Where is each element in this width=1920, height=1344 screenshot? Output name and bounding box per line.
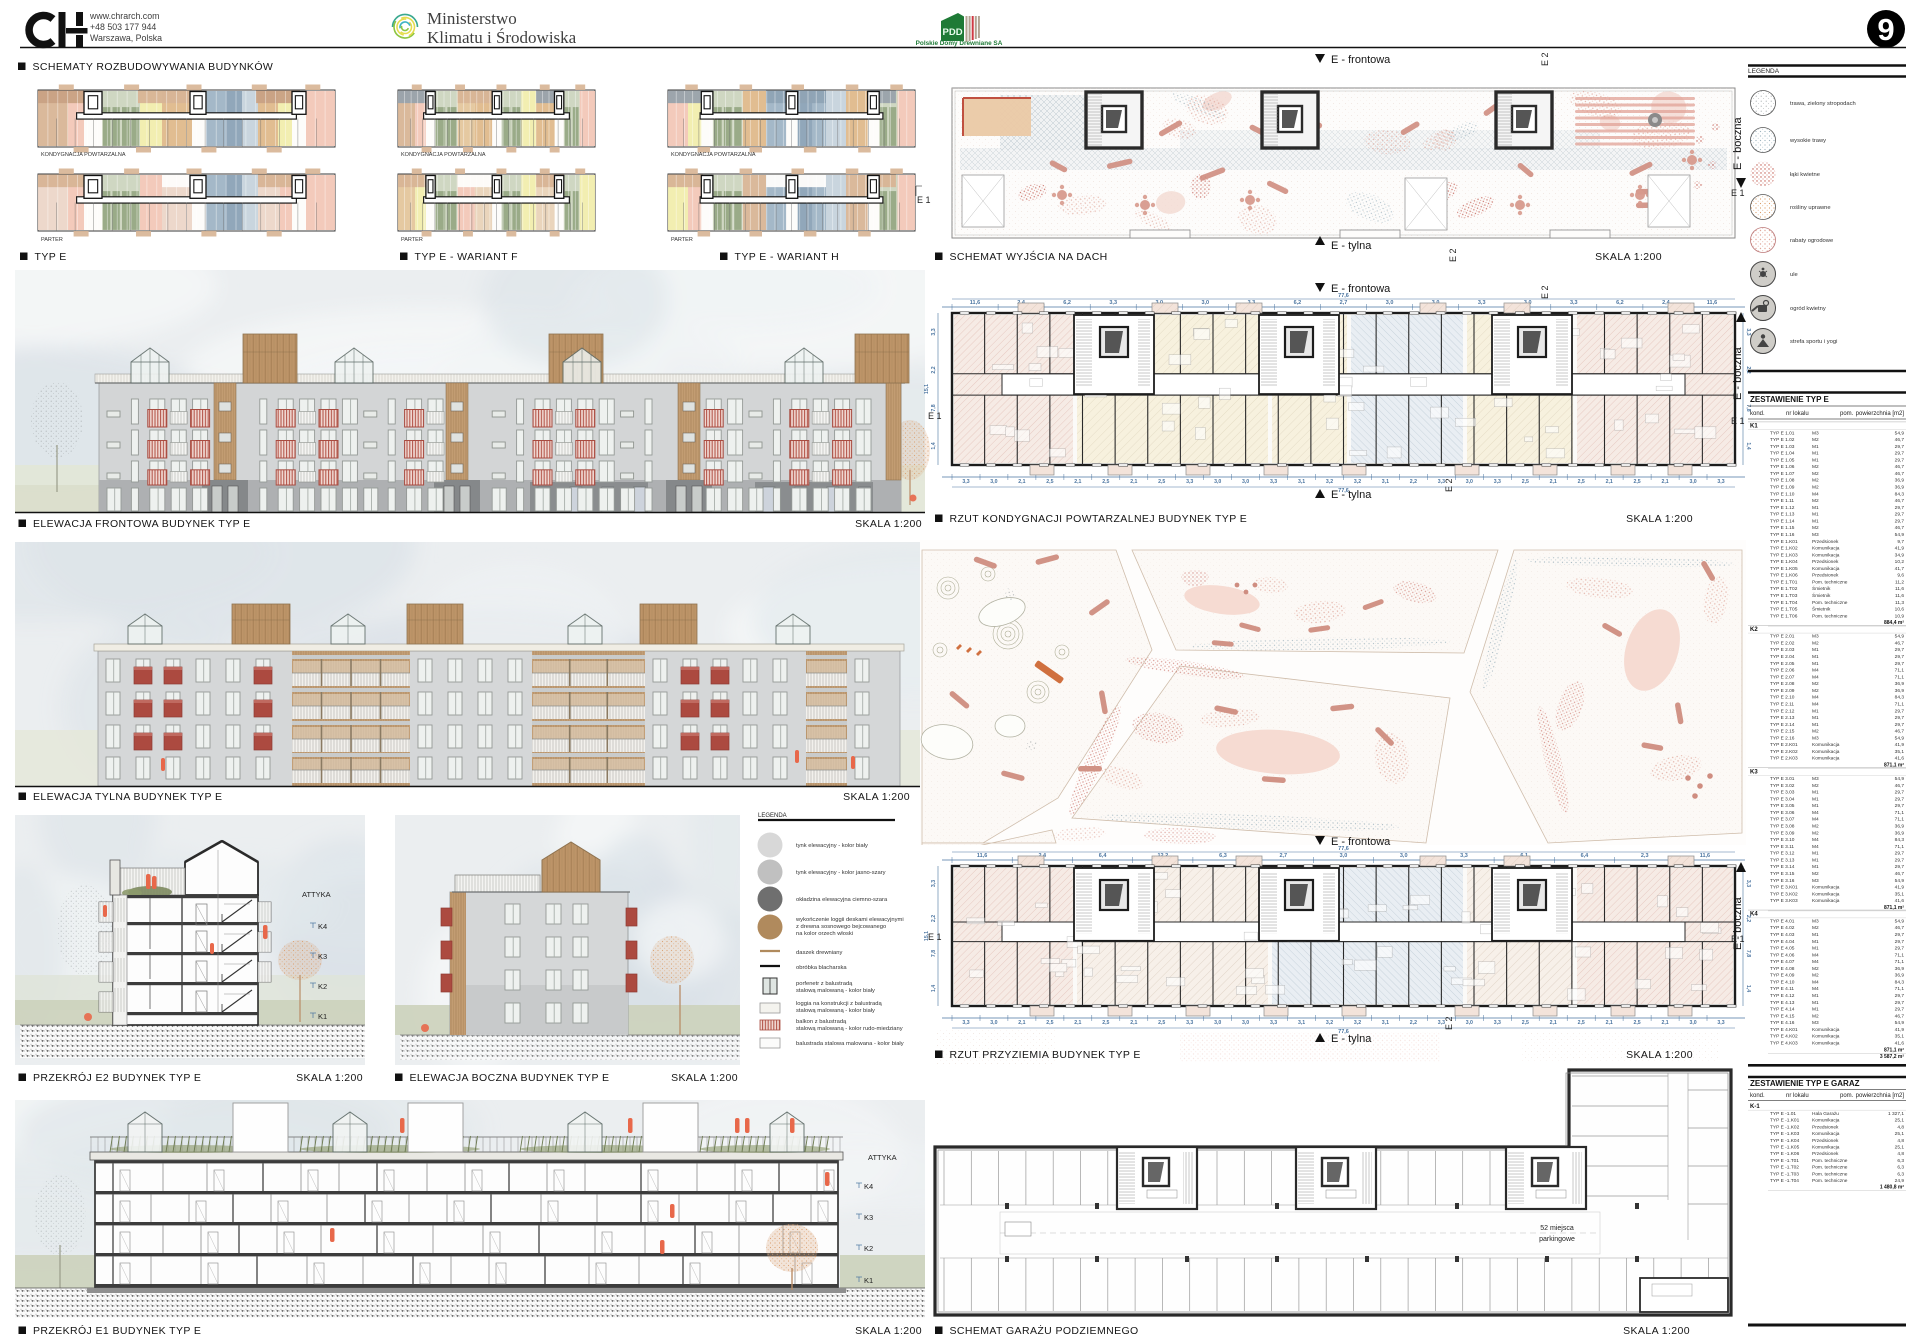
svg-text:wykończenie loggii deskami ele: wykończenie loggii deskami elewacyjnymi (795, 917, 904, 923)
svg-text:2,1: 2,1 (1130, 1020, 1137, 1026)
svg-text:29,7: 29,7 (1895, 661, 1905, 667)
svg-text:3,3: 3,3 (931, 880, 937, 887)
svg-text:3,3: 3,3 (1745, 880, 1751, 887)
svg-text:2,1: 2,1 (1661, 479, 1668, 485)
svg-text:41,9: 41,9 (1895, 1027, 1905, 1033)
svg-text:tynk elewacyjny - kolor biały: tynk elewacyjny - kolor biały (796, 843, 868, 849)
svg-text:3,0: 3,0 (1214, 479, 1221, 485)
svg-text:parkingowe: parkingowe (1539, 1236, 1575, 1243)
svg-text:29,7: 29,7 (1895, 946, 1905, 952)
svg-text:M2: M2 (1812, 525, 1819, 531)
svg-text:35,1: 35,1 (1895, 1034, 1905, 1040)
svg-text:3,0: 3,0 (1340, 853, 1348, 859)
svg-text:SKALA 1:200: SKALA 1:200 (1626, 1049, 1693, 1061)
svg-text:kond.: kond. (1750, 1093, 1765, 1099)
svg-text:3,3: 3,3 (1745, 328, 1751, 335)
svg-text:71,1: 71,1 (1895, 674, 1905, 680)
svg-text:M4: M4 (1812, 668, 1819, 674)
svg-text:2,5: 2,5 (1046, 1020, 1053, 1026)
svg-text:10,2: 10,2 (1895, 559, 1905, 565)
svg-text:M1: M1 (1812, 803, 1819, 809)
svg-text:29,7: 29,7 (1895, 857, 1905, 863)
svg-text:29,7: 29,7 (1895, 993, 1905, 999)
svg-text:E 2: E 2 (1444, 1016, 1454, 1030)
svg-text:2,1: 2,1 (1018, 1020, 1025, 1026)
svg-text:Komunikacja: Komunikacja (1812, 756, 1840, 762)
svg-text:7,8: 7,8 (931, 950, 937, 957)
svg-text:46,7: 46,7 (1895, 471, 1905, 477)
svg-text:29,7: 29,7 (1895, 790, 1905, 796)
svg-text:54,9: 54,9 (1895, 878, 1905, 884)
svg-text:3,0: 3,0 (1386, 300, 1394, 306)
svg-text:3,0: 3,0 (1400, 853, 1408, 859)
svg-text:TYP E 4.06: TYP E 4.06 (1770, 952, 1795, 958)
svg-text:Hala Garażu: Hala Garażu (1812, 1111, 1839, 1117)
svg-text:ZESTAWIENIE TYP E GARAZ: ZESTAWIENIE TYP E GARAZ (1750, 1079, 1860, 1088)
svg-text:TYP E -1.01: TYP E -1.01 (1770, 1111, 1796, 1117)
svg-text:K3: K3 (318, 952, 327, 961)
svg-text:TYP E 4.10: TYP E 4.10 (1770, 979, 1795, 985)
svg-text:SKALA 1:200: SKALA 1:200 (843, 791, 910, 803)
svg-text:TYP E 1.T03: TYP E 1.T03 (1770, 593, 1798, 599)
svg-text:TYP E 3.K03: TYP E 3.K03 (1770, 898, 1798, 904)
svg-text:M1: M1 (1812, 851, 1819, 857)
svg-text:TYP E 2.02: TYP E 2.02 (1770, 640, 1795, 646)
svg-text:M2: M2 (1812, 485, 1819, 491)
svg-text:balustrada stalowa malowana -: balustrada stalowa malowana - kolor biał… (796, 1041, 904, 1047)
svg-text:E 1: E 1 (1731, 188, 1745, 198)
svg-text:TYP E 4.09: TYP E 4.09 (1770, 973, 1795, 979)
svg-text:SKALA 1:200: SKALA 1:200 (296, 1072, 363, 1084)
svg-text:34,9: 34,9 (1895, 552, 1905, 558)
svg-text:6,3: 6,3 (1219, 853, 1227, 859)
svg-text:M4: M4 (1812, 979, 1819, 985)
svg-text:KONDYGNACJA POWTARZALNA: KONDYGNACJA POWTARZALNA (671, 152, 756, 158)
svg-text:54,9: 54,9 (1895, 532, 1905, 538)
svg-text:TYP E 3.12: TYP E 3.12 (1770, 851, 1795, 857)
svg-text:TYP E 2.14: TYP E 2.14 (1770, 722, 1795, 728)
svg-text:TYP E 1.K02: TYP E 1.K02 (1770, 546, 1798, 552)
svg-text:M1: M1 (1812, 722, 1819, 728)
svg-text:TYP E 4.14: TYP E 4.14 (1770, 1007, 1795, 1013)
svg-text:3 587,2 m²: 3 587,2 m² (1880, 1054, 1905, 1060)
svg-text:E - boczna: E - boczna (1732, 347, 1744, 400)
svg-text:M1: M1 (1812, 864, 1819, 870)
svg-text:TYP E 1.09: TYP E 1.09 (1770, 485, 1795, 491)
svg-text:+48 503 177 944: +48 503 177 944 (90, 22, 156, 32)
svg-text:2,5: 2,5 (1522, 1020, 1529, 1026)
svg-text:TYP E 2.08: TYP E 2.08 (1770, 681, 1795, 687)
svg-text:TYP E 2.10: TYP E 2.10 (1770, 695, 1795, 701)
svg-text:3,1: 3,1 (1298, 479, 1305, 485)
svg-text:K2: K2 (1750, 627, 1758, 633)
svg-text:3,3: 3,3 (1717, 479, 1724, 485)
svg-text:3,0: 3,0 (990, 1020, 997, 1026)
svg-text:E 1: E 1 (917, 195, 931, 205)
svg-text:Komunikacja: Komunikacja (1812, 1145, 1840, 1151)
svg-text:TYP E 1.13: TYP E 1.13 (1770, 512, 1795, 518)
svg-text:2,5: 2,5 (1633, 1020, 1640, 1026)
svg-text:TYP E 1.07: TYP E 1.07 (1770, 471, 1795, 477)
svg-text:M3: M3 (1812, 634, 1819, 640)
svg-text:TYP E 3.K01: TYP E 3.K01 (1770, 885, 1798, 891)
svg-text:TYP E 2.K03: TYP E 2.K03 (1770, 756, 1798, 762)
svg-text:46,7: 46,7 (1895, 1013, 1905, 1019)
svg-text:3,3: 3,3 (1494, 479, 1501, 485)
svg-text:3,2: 3,2 (1326, 1020, 1333, 1026)
svg-text:M4: M4 (1812, 701, 1819, 707)
svg-text:M2: M2 (1812, 871, 1819, 877)
svg-text:E - tylna: E - tylna (1331, 489, 1372, 501)
svg-text:4,8: 4,8 (1897, 1151, 1904, 1157)
svg-text:M1: M1 (1812, 518, 1819, 524)
svg-text:Pom. techniczne: Pom. techniczne (1812, 613, 1848, 619)
svg-text:LEGENDA: LEGENDA (758, 813, 787, 819)
svg-text:3,0: 3,0 (1242, 479, 1249, 485)
svg-text:ogród kwietny: ogród kwietny (1790, 306, 1826, 312)
svg-text:TYP E 2.K01: TYP E 2.K01 (1770, 742, 1798, 748)
svg-text:36,9: 36,9 (1895, 478, 1905, 484)
svg-text:porfenetr z balustradą: porfenetr z balustradą (796, 981, 853, 987)
svg-text:TYP E 4.01: TYP E 4.01 (1770, 918, 1795, 924)
svg-text:46,7: 46,7 (1895, 729, 1905, 735)
svg-text:2,1: 2,1 (1074, 1020, 1081, 1026)
svg-text:1 480,8 m²: 1 480,8 m² (1880, 1185, 1905, 1191)
svg-text:M2: M2 (1812, 471, 1819, 477)
svg-text:TYP E 4.13: TYP E 4.13 (1770, 1000, 1795, 1006)
svg-text:K-1: K-1 (1750, 1104, 1760, 1110)
svg-text:2,1: 2,1 (1130, 479, 1137, 485)
svg-text:M2: M2 (1812, 478, 1819, 484)
svg-text:kond.: kond. (1750, 411, 1765, 417)
svg-text:M2: M2 (1812, 973, 1819, 979)
svg-text:M3: M3 (1812, 918, 1819, 924)
svg-text:E - boczna: E - boczna (1732, 117, 1744, 170)
svg-text:PARTER: PARTER (41, 237, 63, 243)
svg-text:29,7: 29,7 (1895, 851, 1905, 857)
svg-text:2,5: 2,5 (1102, 479, 1109, 485)
svg-text:PRZEKRÓJ E2 BUDYNEK TYP E: PRZEKRÓJ E2 BUDYNEK TYP E (33, 1071, 201, 1084)
svg-text:71,1: 71,1 (1895, 844, 1905, 850)
svg-text:2,5: 2,5 (1633, 479, 1640, 485)
svg-text:71,1: 71,1 (1895, 952, 1905, 958)
svg-text:TYP E 3.03: TYP E 3.03 (1770, 790, 1795, 796)
svg-text:TYP E 1.T04: TYP E 1.T04 (1770, 600, 1798, 606)
svg-text:TYP E 3.K02: TYP E 3.K02 (1770, 891, 1798, 897)
svg-text:29,7: 29,7 (1895, 512, 1905, 518)
svg-text:84,3: 84,3 (1895, 491, 1905, 497)
svg-text:84,3: 84,3 (1895, 837, 1905, 843)
svg-text:29,7: 29,7 (1895, 647, 1905, 653)
svg-text:E - tylna: E - tylna (1331, 240, 1372, 252)
svg-text:Komunikacja: Komunikacja (1812, 1040, 1840, 1046)
svg-text:TYP E 2.11: TYP E 2.11 (1770, 701, 1794, 707)
svg-text:TYP E 4.05: TYP E 4.05 (1770, 946, 1795, 952)
svg-text:TYP E 4.16: TYP E 4.16 (1770, 1020, 1795, 1026)
svg-text:TYP E 1.16: TYP E 1.16 (1770, 532, 1795, 538)
svg-text:46,7: 46,7 (1895, 437, 1905, 443)
svg-text:TYP E 3.13: TYP E 3.13 (1770, 857, 1795, 863)
svg-text:Pom. techniczne: Pom. techniczne (1812, 600, 1848, 606)
svg-text:TYP E 4.02: TYP E 4.02 (1770, 925, 1795, 931)
svg-text:6,2: 6,2 (1063, 300, 1071, 306)
svg-text:TYP E 1.T06: TYP E 1.T06 (1770, 613, 1798, 619)
svg-text:84,3: 84,3 (1895, 695, 1905, 701)
svg-text:1 327,1: 1 327,1 (1888, 1111, 1904, 1117)
svg-text:K1: K1 (1750, 424, 1758, 430)
svg-text:3,3: 3,3 (1270, 1020, 1277, 1026)
svg-text:3,1: 3,1 (1382, 479, 1389, 485)
svg-text:TYP E 1.05: TYP E 1.05 (1770, 457, 1795, 463)
svg-text:46,7: 46,7 (1895, 464, 1905, 470)
svg-text:36,9: 36,9 (1895, 824, 1905, 830)
svg-text:E - frontowa: E - frontowa (1331, 54, 1391, 66)
svg-text:11,6: 11,6 (1895, 586, 1904, 592)
svg-text:2,1: 2,1 (1018, 479, 1025, 485)
svg-text:E 2: E 2 (1540, 285, 1550, 299)
svg-text:Komunikacja: Komunikacja (1812, 749, 1840, 755)
svg-text:41,7: 41,7 (1895, 566, 1905, 572)
svg-text:stalową malowaną - kolor rudo-: stalową malowaną - kolor rudo-miedziany (796, 1026, 903, 1032)
svg-text:trawa, zielony stropodach: trawa, zielony stropodach (1790, 101, 1856, 107)
svg-text:46,7: 46,7 (1895, 498, 1905, 504)
svg-text:3,0: 3,0 (1466, 479, 1473, 485)
svg-text:K1: K1 (318, 1012, 327, 1021)
svg-text:3,0: 3,0 (1242, 1020, 1249, 1026)
svg-text:3,3: 3,3 (1494, 1020, 1501, 1026)
svg-text:M3: M3 (1812, 878, 1819, 884)
svg-text:K3: K3 (864, 1213, 873, 1222)
svg-text:71,1: 71,1 (1895, 986, 1905, 992)
svg-text:TYP E 2.16: TYP E 2.16 (1770, 735, 1795, 741)
svg-text:3,1: 3,1 (1382, 1020, 1389, 1026)
svg-text:M4: M4 (1812, 837, 1819, 843)
svg-text:15,1: 15,1 (924, 384, 930, 394)
svg-text:M1: M1 (1812, 654, 1819, 660)
svg-text:35,1: 35,1 (1895, 891, 1905, 897)
svg-text:46,7: 46,7 (1895, 640, 1905, 646)
svg-text:Komunikacja: Komunikacja (1812, 552, 1840, 558)
svg-text:TYP E -1.K01: TYP E -1.K01 (1770, 1118, 1800, 1124)
svg-text:loggia na konstrukcji z balust: loggia na konstrukcji z balustradą (796, 1001, 882, 1007)
svg-text:871,1 m²: 871,1 m² (1884, 1047, 1904, 1053)
svg-text:TYP E -1.K05: TYP E -1.K05 (1770, 1145, 1800, 1151)
svg-text:36,9: 36,9 (1895, 485, 1905, 491)
svg-text:3,1: 3,1 (1298, 1020, 1305, 1026)
svg-text:Pom. techniczne: Pom. techniczne (1812, 1178, 1848, 1184)
svg-text:M2: M2 (1812, 437, 1819, 443)
svg-text:TYP E 2.09: TYP E 2.09 (1770, 688, 1795, 694)
svg-text:TYP E 1.01: TYP E 1.01 (1770, 430, 1795, 436)
svg-text:2,5: 2,5 (1046, 479, 1053, 485)
svg-text:6,3: 6,3 (1897, 1171, 1904, 1177)
svg-text:M3: M3 (1812, 735, 1819, 741)
svg-text:M2: M2 (1812, 681, 1819, 687)
svg-text:Komunikacja: Komunikacja (1812, 1027, 1840, 1033)
svg-text:Ministerstwo: Ministerstwo (427, 9, 517, 28)
svg-text:Pom. techniczne: Pom. techniczne (1812, 579, 1848, 585)
svg-text:54,9: 54,9 (1895, 735, 1905, 741)
svg-text:52 miejsca: 52 miejsca (1540, 1225, 1574, 1232)
svg-text:E 2: E 2 (1444, 478, 1454, 492)
svg-text:2,2: 2,2 (1410, 1020, 1417, 1026)
svg-text:TYP E 1.T01: TYP E 1.T01 (1770, 579, 1798, 585)
svg-text:Pom. techniczne: Pom. techniczne (1812, 1171, 1848, 1177)
svg-text:1,4: 1,4 (931, 985, 937, 992)
svg-text:71,1: 71,1 (1895, 701, 1905, 707)
svg-text:M4: M4 (1812, 810, 1819, 816)
svg-text:M1: M1 (1812, 939, 1819, 945)
svg-text:29,7: 29,7 (1895, 1000, 1905, 1006)
svg-text:SCHEMATY ROZBUDOWYWANIA BUDYNK: SCHEMATY ROZBUDOWYWANIA BUDYNKÓW (33, 60, 274, 73)
svg-text:1,4: 1,4 (931, 442, 937, 449)
svg-text:TYP E -1.K03: TYP E -1.K03 (1770, 1131, 1800, 1137)
svg-text:11,6: 11,6 (1707, 300, 1717, 306)
svg-text:SCHEMAT GARAŻU PODZIEMNEGO: SCHEMAT GARAŻU PODZIEMNEGO (950, 1324, 1139, 1337)
svg-text:TYP E 1.10: TYP E 1.10 (1770, 491, 1795, 497)
svg-text:2,3: 2,3 (1641, 853, 1649, 859)
svg-text:TYP E 2.05: TYP E 2.05 (1770, 661, 1795, 667)
svg-text:M2: M2 (1812, 824, 1819, 830)
svg-text:TYP E 4.K02: TYP E 4.K02 (1770, 1034, 1798, 1040)
svg-text:2,1: 2,1 (1550, 479, 1557, 485)
svg-text:54,9: 54,9 (1895, 634, 1905, 640)
svg-text:TYP E 2.15: TYP E 2.15 (1770, 729, 1795, 735)
svg-text:TYP E 1.15: TYP E 1.15 (1770, 525, 1795, 531)
svg-text:E 2: E 2 (1540, 52, 1550, 66)
svg-text:54,9: 54,9 (1895, 776, 1905, 782)
svg-text:2,1: 2,1 (1550, 1020, 1557, 1026)
svg-text:M4: M4 (1812, 986, 1819, 992)
svg-text:TYP E 2.K02: TYP E 2.K02 (1770, 749, 1798, 755)
svg-text:11,3: 11,3 (1895, 600, 1904, 606)
svg-text:2,5: 2,5 (1102, 1020, 1109, 1026)
svg-text:KONDYGNACJA POWTARZALNA: KONDYGNACJA POWTARZALNA (401, 152, 486, 158)
svg-text:TYP E 3.07: TYP E 3.07 (1770, 817, 1795, 823)
svg-text:2,1: 2,1 (1606, 1020, 1613, 1026)
svg-text:M3: M3 (1812, 776, 1819, 782)
svg-text:2,5: 2,5 (1158, 1020, 1165, 1026)
svg-text:46,7: 46,7 (1895, 525, 1905, 531)
svg-text:M1: M1 (1812, 505, 1819, 511)
svg-text:M1: M1 (1812, 1000, 1819, 1006)
svg-text:z drewna sosnowego bejcowanego: z drewna sosnowego bejcowanego (796, 924, 886, 930)
svg-text:nr lokalu: nr lokalu (1786, 411, 1809, 417)
svg-text:M2: M2 (1812, 1013, 1819, 1019)
svg-text:TYP E: TYP E (35, 251, 67, 263)
svg-text:TYP E 3.06: TYP E 3.06 (1770, 810, 1795, 816)
svg-text:TYP E 1.14: TYP E 1.14 (1770, 518, 1795, 524)
svg-text:rabaty ogrodowe: rabaty ogrodowe (1790, 238, 1833, 244)
svg-text:PARTER: PARTER (401, 237, 423, 243)
svg-text:3,3: 3,3 (1717, 1020, 1724, 1026)
svg-text:36,9: 36,9 (1895, 688, 1905, 694)
svg-text:K2: K2 (864, 1244, 873, 1253)
svg-text:M1: M1 (1812, 715, 1819, 721)
svg-text:M4: M4 (1812, 952, 1819, 958)
svg-text:10,6: 10,6 (1895, 607, 1905, 613)
svg-text:Komunikacja: Komunikacja (1812, 898, 1840, 904)
svg-text:Komunikacja: Komunikacja (1812, 546, 1840, 552)
svg-text:41,9: 41,9 (1895, 742, 1905, 748)
svg-text:2,5: 2,5 (1578, 1020, 1585, 1026)
svg-text:M2: M2 (1812, 688, 1819, 694)
svg-text:Pom. techniczne: Pom. techniczne (1812, 1165, 1848, 1171)
svg-text:29,7: 29,7 (1895, 444, 1905, 450)
svg-text:2,1: 2,1 (1661, 1020, 1668, 1026)
svg-text:M2: M2 (1812, 498, 1819, 504)
svg-text:2,2: 2,2 (931, 366, 937, 373)
svg-text:M3: M3 (1812, 1020, 1819, 1026)
svg-text:TYP E 1.11: TYP E 1.11 (1770, 498, 1794, 504)
svg-text:6,2: 6,2 (1294, 300, 1302, 306)
svg-text:3,0: 3,0 (1689, 1020, 1696, 1026)
svg-text:Komunikacja: Komunikacja (1812, 885, 1840, 891)
svg-text:3,3: 3,3 (1460, 853, 1468, 859)
svg-text:29,7: 29,7 (1895, 654, 1905, 660)
svg-text:RZUT PRZYZIEMIA BUDYNEK TYP E: RZUT PRZYZIEMIA BUDYNEK TYP E (950, 1049, 1141, 1061)
svg-text:pom.: pom. (1840, 411, 1854, 417)
svg-text:29,7: 29,7 (1895, 518, 1905, 524)
svg-text:2,5: 2,5 (1578, 479, 1585, 485)
svg-text:RZUT KONDYGNACJI POWTARZALNEJ: RZUT KONDYGNACJI POWTARZALNEJ BUDYNEK TY… (950, 513, 1248, 525)
svg-text:K4: K4 (864, 1182, 873, 1191)
svg-text:Przedsionek: Przedsionek (1812, 1138, 1839, 1144)
svg-text:3,3: 3,3 (1109, 300, 1117, 306)
svg-text:M2: M2 (1812, 783, 1819, 789)
svg-text:M4: M4 (1812, 491, 1819, 497)
svg-text:M1: M1 (1812, 1007, 1819, 1013)
svg-text:M1: M1 (1812, 857, 1819, 863)
svg-text:M4: M4 (1812, 959, 1819, 965)
svg-text:ELEWACJA BOCZNA BUDYNEK TYP E: ELEWACJA BOCZNA BUDYNEK TYP E (410, 1072, 610, 1084)
svg-text:TYP E -1.T02: TYP E -1.T02 (1770, 1165, 1799, 1171)
svg-text:nr lokalu: nr lokalu (1786, 1093, 1809, 1099)
svg-text:M1: M1 (1812, 790, 1819, 796)
svg-text:6,3: 6,3 (1897, 1158, 1904, 1164)
svg-text:M2: M2 (1812, 729, 1819, 735)
svg-text:PDD: PDD (943, 27, 963, 38)
svg-text:M2: M2 (1812, 464, 1819, 470)
svg-text:11,6: 11,6 (1700, 853, 1710, 859)
svg-text:TYP E 4.K03: TYP E 4.K03 (1770, 1040, 1798, 1046)
svg-text:TYP E 3.04: TYP E 3.04 (1770, 796, 1795, 802)
svg-text:SKALA 1:200: SKALA 1:200 (1595, 251, 1662, 263)
svg-text:41,6: 41,6 (1895, 756, 1905, 762)
svg-text:41,9: 41,9 (1895, 885, 1905, 891)
svg-text:TYP E 2.03: TYP E 2.03 (1770, 647, 1795, 653)
svg-text:Warszawa, Polska: Warszawa, Polska (90, 33, 162, 43)
svg-text:29,7: 29,7 (1895, 505, 1905, 511)
svg-text:E - boczna: E - boczna (1732, 897, 1744, 950)
svg-text:3,2: 3,2 (1326, 479, 1333, 485)
svg-text:TYP E 4.12: TYP E 4.12 (1770, 993, 1795, 999)
svg-text:54,9: 54,9 (1895, 918, 1905, 924)
svg-text:29,7: 29,7 (1895, 939, 1905, 945)
svg-text:TYP E 1.T02: TYP E 1.T02 (1770, 586, 1798, 592)
svg-text:41,9: 41,9 (1895, 546, 1905, 552)
svg-text:29,7: 29,7 (1895, 708, 1905, 714)
svg-text:ule: ule (1790, 272, 1798, 278)
svg-text:TYP E 3.10: TYP E 3.10 (1770, 837, 1795, 843)
svg-text:TYP E 3.08: TYP E 3.08 (1770, 824, 1795, 830)
svg-text:SKALA 1:200: SKALA 1:200 (671, 1072, 738, 1084)
svg-text:2,2: 2,2 (931, 915, 937, 922)
svg-text:25,1: 25,1 (1895, 1131, 1905, 1137)
svg-text:29,7: 29,7 (1895, 451, 1905, 457)
svg-text:M2: M2 (1812, 925, 1819, 931)
svg-text:Klimatu i Środowiska: Klimatu i Środowiska (427, 28, 577, 47)
